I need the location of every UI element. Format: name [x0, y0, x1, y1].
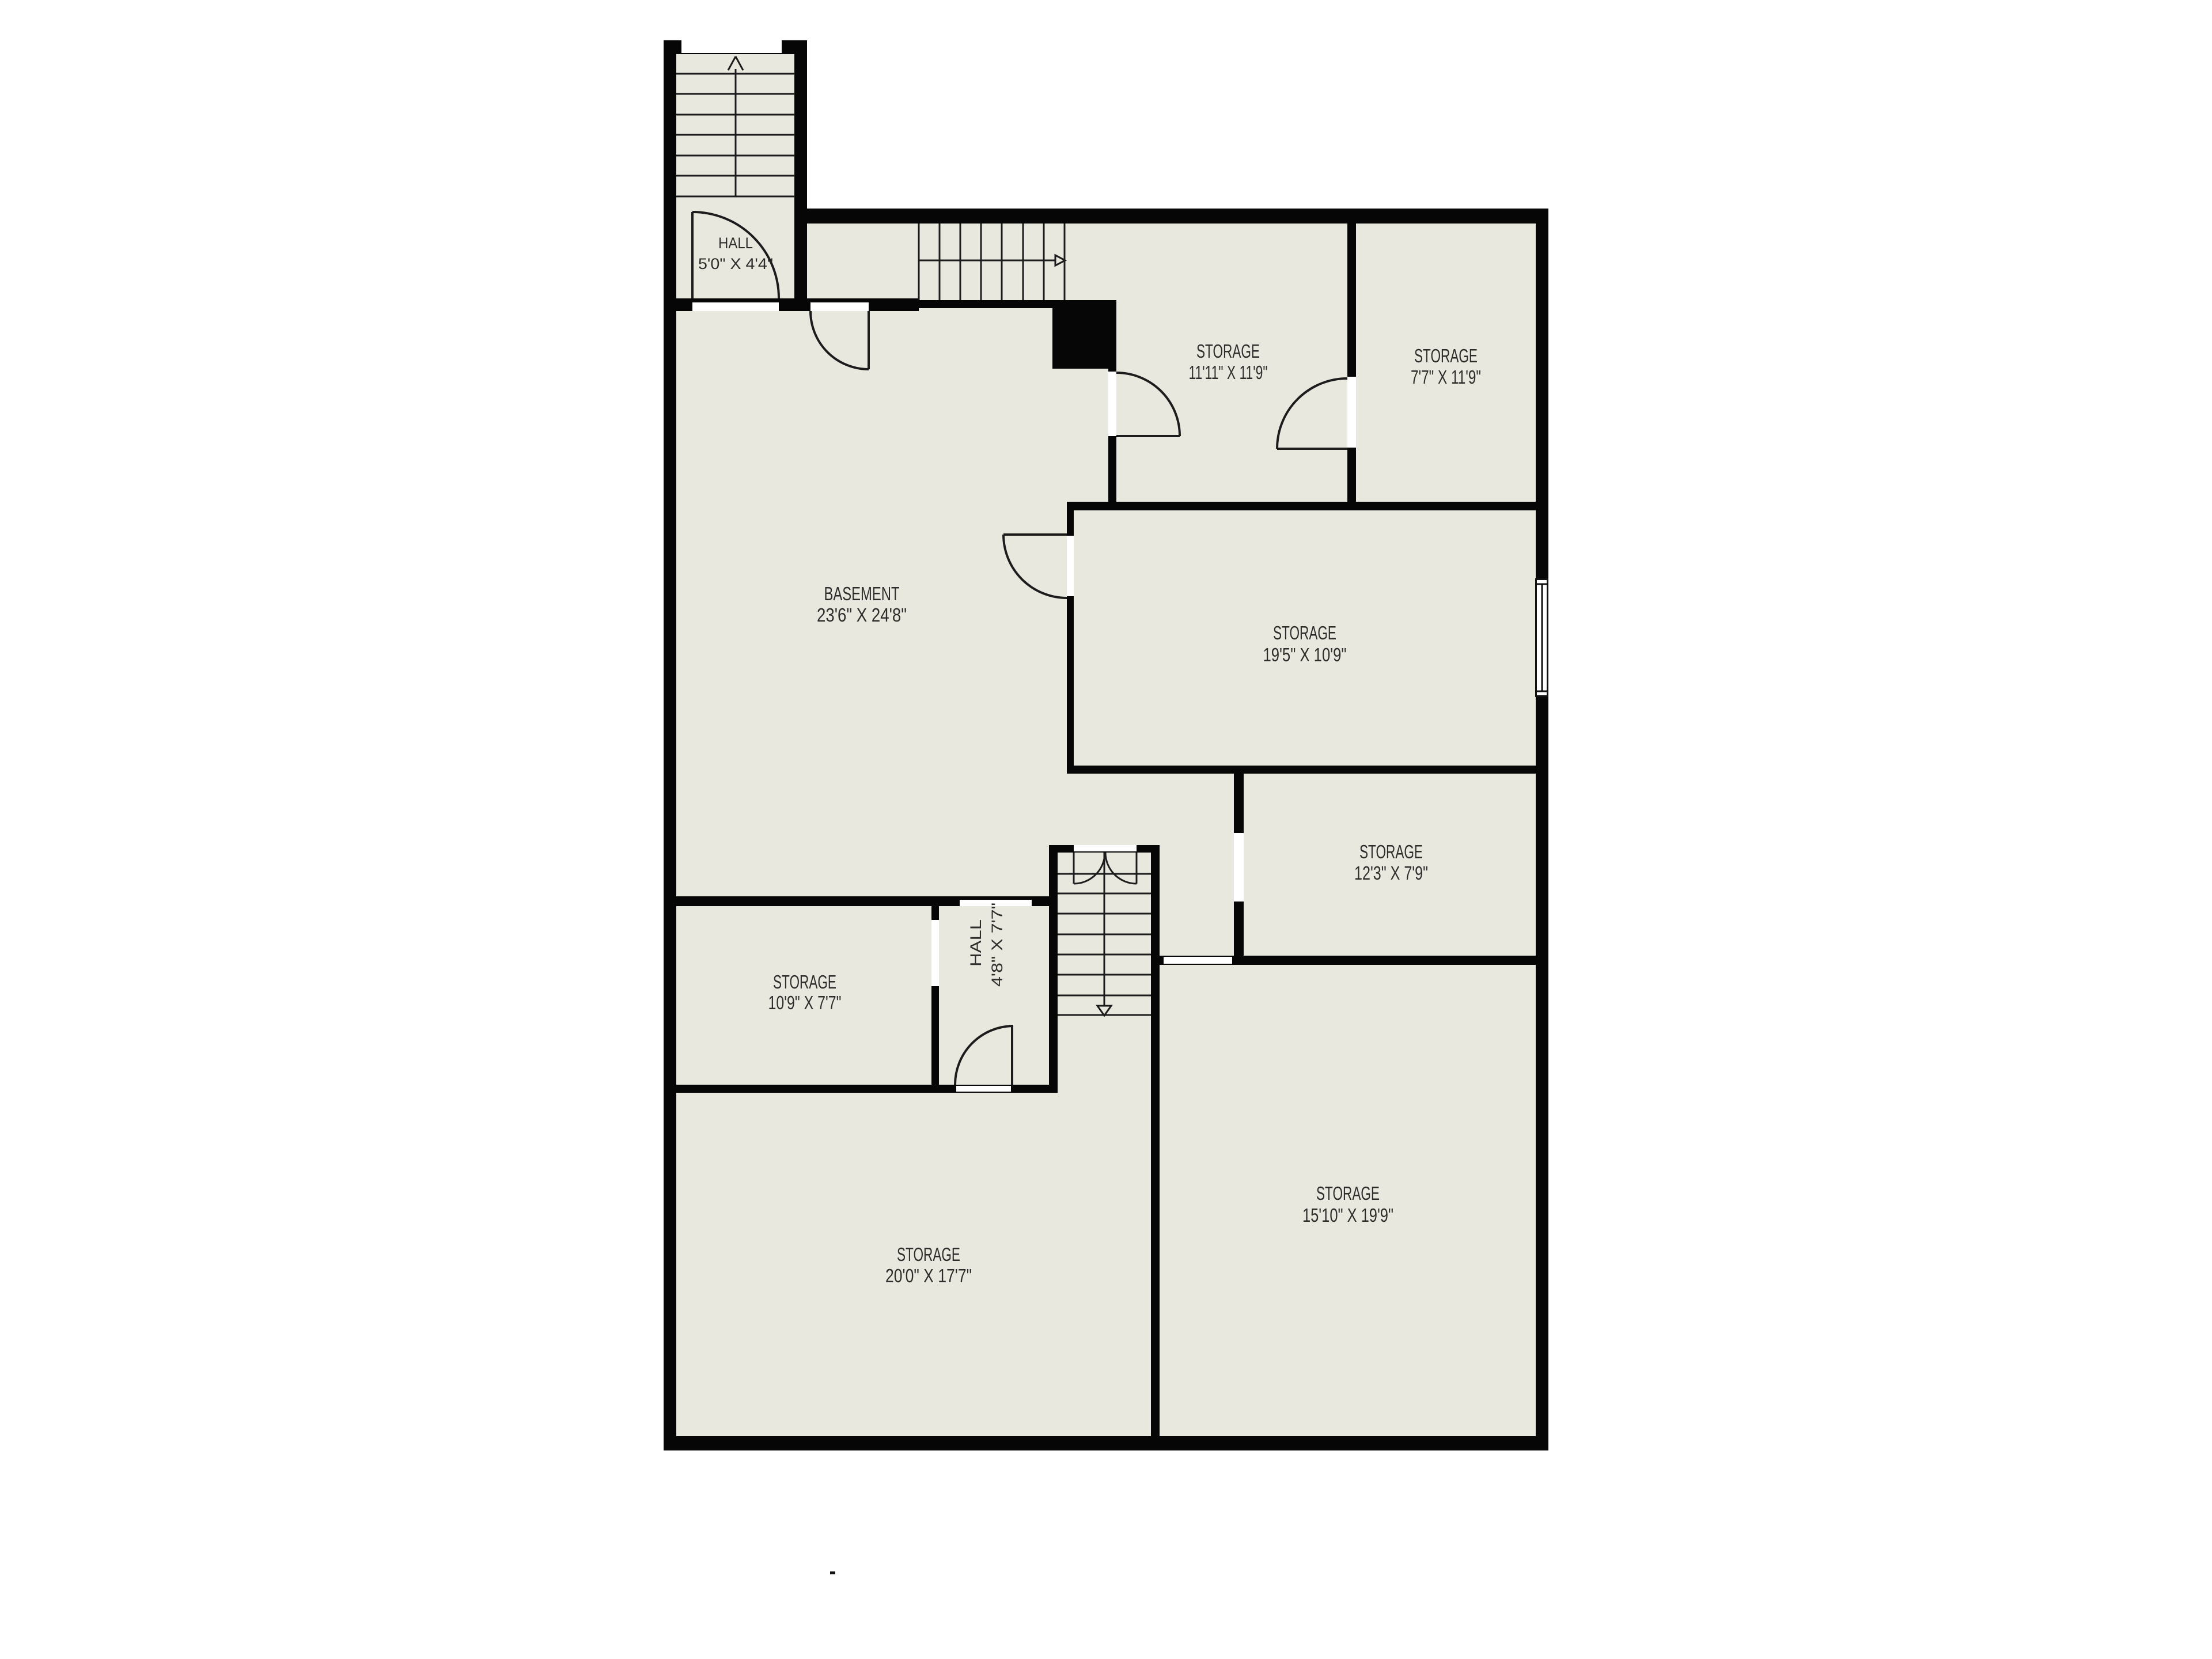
svg-text:15'10" X 19'9": 15'10" X 19'9" [1302, 1205, 1393, 1226]
svg-text:12'3" X 7'9": 12'3" X 7'9" [1354, 862, 1428, 884]
svg-text:4'8" X 7'7": 4'8" X 7'7" [988, 903, 1006, 987]
svg-text:STORAGE: STORAGE [1414, 345, 1478, 366]
svg-text:11'11" X 11'9": 11'11" X 11'9" [1189, 362, 1268, 383]
svg-text:BASEMENT: BASEMENT [824, 583, 900, 604]
svg-text:STORAGE: STORAGE [1196, 340, 1260, 362]
svg-text:HALL: HALL [967, 919, 984, 967]
svg-text:10'9" X 7'7": 10'9" X 7'7" [768, 992, 842, 1013]
svg-text:STORAGE: STORAGE [773, 971, 836, 993]
svg-text:23'6" X 24'8": 23'6" X 24'8" [817, 604, 907, 626]
svg-text:5'0" X 4'4": 5'0" X 4'4" [698, 255, 773, 272]
svg-text:STORAGE: STORAGE [1316, 1183, 1380, 1204]
svg-text:HALL: HALL [718, 234, 753, 252]
svg-text:19'5" X 10'9": 19'5" X 10'9" [1263, 644, 1347, 665]
svg-text:7'7" X 11'9": 7'7" X 11'9" [1411, 366, 1481, 388]
svg-text:STORAGE: STORAGE [1359, 841, 1423, 862]
svg-text:STORAGE: STORAGE [1273, 622, 1336, 643]
svg-text:STORAGE: STORAGE [897, 1244, 960, 1265]
svg-text:20'0" X 17'7": 20'0" X 17'7" [885, 1265, 972, 1286]
